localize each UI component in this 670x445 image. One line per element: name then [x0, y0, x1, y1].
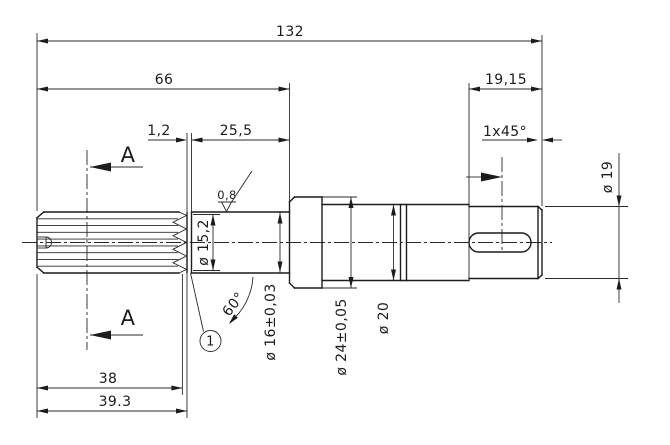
relief-groove	[187, 213, 192, 273]
keyway-section-marker	[466, 157, 502, 253]
balloon-number: 1	[206, 335, 215, 350]
dim-end-section-length: 19,15	[469, 72, 542, 92]
section-label-bottom: A	[121, 306, 136, 330]
dim-middle-diameter-label: ø 20	[376, 302, 392, 334]
keyway-section-arrow	[481, 173, 502, 182]
dim-left-section-label: 66	[155, 72, 174, 88]
dim-relief-groove-width: 1,2	[147, 123, 187, 143]
surface-roughness-value: 0,8	[217, 188, 237, 202]
dim-shoulder-diameter-label: ø 16±0,03	[263, 283, 279, 360]
dim-collar-diameter: ø 24±0,05	[334, 197, 354, 376]
dim-end-chamfer-label: 1x45°	[483, 124, 527, 140]
dim-end-diameter-label: ø 19	[600, 161, 616, 193]
shaft-technical-drawing: A A	[0, 0, 670, 445]
surface-roughness-symbol: 0,8	[217, 171, 252, 212]
dim-relief-groove-diameter-label: ø 15,2	[196, 219, 212, 266]
dim-total-length: 132	[37, 24, 542, 44]
dim-middle-diameter: ø 20	[376, 205, 396, 335]
dim-spline-length: 38	[37, 371, 182, 391]
dim-relief-groove-angle-label: 60°	[220, 289, 249, 319]
dim-spline-length-label: 38	[99, 371, 118, 387]
dim-spline-overall-length: 39.3	[37, 394, 187, 414]
dim-spline-overall-length-label: 39.3	[99, 394, 132, 410]
dim-shoulder-length: 25,5	[192, 123, 290, 143]
roughness-check-icon	[222, 202, 232, 212]
section-arrow-bottom	[90, 331, 111, 340]
dim-left-section-length: 66	[37, 72, 290, 92]
dim-shoulder-length-label: 25,5	[220, 123, 253, 139]
dim-total-length-label: 132	[276, 24, 304, 40]
dim-shoulder-diameter: ø 16±0,03	[263, 213, 283, 361]
section-line-a: A A	[87, 143, 143, 350]
drawing-canvas: A A	[0, 0, 670, 445]
dim-end-chamfer: 1x45°	[482, 124, 562, 143]
section-arrow-top	[90, 163, 111, 172]
dim-end-diameter: ø 19	[600, 153, 622, 303]
dim-relief-groove-width-label: 1,2	[147, 123, 170, 139]
dim-collar-diameter-label: ø 24±0,05	[334, 298, 350, 375]
section-label-top: A	[121, 143, 136, 167]
dim-end-section-label: 19,15	[485, 72, 527, 88]
end-section	[469, 83, 542, 281]
detail-balloon: 1	[191, 273, 222, 352]
dim-relief-groove-diameter: ø 15,2	[196, 215, 216, 271]
dim-relief-groove-angle: 60°	[220, 277, 253, 324]
